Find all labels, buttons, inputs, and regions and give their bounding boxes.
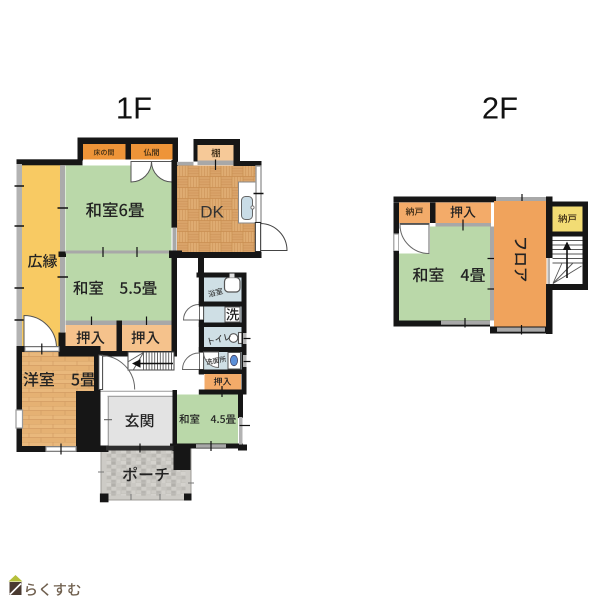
svg-text:DK: DK: [200, 203, 224, 222]
svg-text:2F: 2F: [482, 91, 518, 126]
svg-text:1F: 1F: [116, 91, 152, 126]
